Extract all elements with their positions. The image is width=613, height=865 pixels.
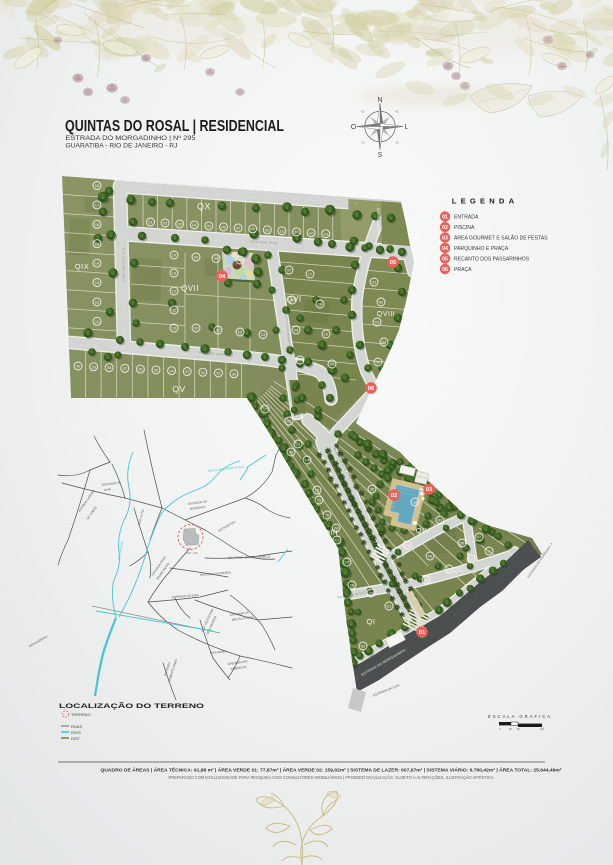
svg-text:04: 04 — [405, 543, 410, 548]
svg-text:19: 19 — [324, 332, 329, 337]
svg-text:05: 05 — [390, 260, 397, 266]
svg-text:26: 26 — [350, 583, 355, 588]
svg-text:23: 23 — [317, 498, 322, 503]
svg-text:06: 06 — [368, 386, 375, 392]
svg-text:10: 10 — [280, 228, 285, 233]
svg-text:17: 17 — [335, 538, 340, 543]
svg-text:12: 12 — [238, 330, 243, 335]
svg-text:ENTRADA: ENTRADA — [454, 214, 479, 220]
svg-text:01: 01 — [419, 630, 426, 636]
svg-text:32: 32 — [413, 500, 418, 505]
svg-text:34: 34 — [169, 368, 174, 373]
svg-text:12: 12 — [95, 300, 100, 305]
svg-text:13: 13 — [261, 332, 266, 337]
svg-text:17: 17 — [95, 203, 100, 208]
svg-text:05: 05 — [376, 360, 381, 365]
svg-text:12: 12 — [309, 230, 314, 235]
svg-text:33: 33 — [185, 369, 190, 374]
svg-text:04: 04 — [194, 255, 199, 260]
svg-text:40: 40 — [76, 364, 81, 369]
svg-text:04: 04 — [382, 340, 387, 345]
svg-text:QIV: QIV — [416, 526, 430, 535]
svg-text:07: 07 — [287, 268, 292, 273]
svg-text:ESCALA GRÁFICA: ESCALA GRÁFICA — [488, 714, 552, 719]
svg-text:06: 06 — [221, 225, 226, 230]
svg-text:31: 31 — [438, 518, 443, 523]
svg-text:05: 05 — [207, 224, 212, 229]
svg-text:10: 10 — [172, 326, 177, 331]
svg-text:18: 18 — [95, 183, 100, 188]
svg-text:09: 09 — [265, 227, 270, 232]
svg-text:TER. 245: TER. 245 — [185, 551, 198, 555]
svg-text:06: 06 — [238, 258, 243, 263]
svg-text:10: 10 — [298, 358, 303, 363]
svg-text:SE: SE — [395, 141, 399, 145]
svg-text:QIII: QIII — [324, 528, 338, 537]
svg-text:05: 05 — [442, 256, 448, 262]
svg-text:04: 04 — [192, 223, 197, 228]
svg-text:25: 25 — [345, 560, 350, 565]
svg-text:05: 05 — [214, 256, 219, 261]
svg-text:02: 02 — [391, 493, 397, 499]
svg-text:01: 01 — [372, 280, 377, 285]
svg-text:QVIII: QVIII — [377, 311, 395, 318]
svg-text:18: 18 — [318, 302, 323, 307]
svg-text:02: 02 — [163, 221, 168, 226]
svg-text:N: N — [377, 97, 382, 104]
svg-text:100: 100 — [540, 728, 545, 731]
svg-text:07: 07 — [236, 226, 241, 231]
svg-text:16: 16 — [95, 222, 100, 227]
svg-text:08: 08 — [250, 226, 255, 231]
svg-text:RECANTO DOS PASSARINHOS: RECANTO DOS PASSARINHOS — [454, 256, 530, 262]
svg-text:03: 03 — [375, 320, 380, 325]
svg-text:02: 02 — [361, 644, 366, 649]
svg-text:13: 13 — [296, 442, 301, 447]
svg-text:LEGENDA: LEGENDA — [452, 197, 519, 206]
svg-text:03: 03 — [442, 235, 448, 241]
svg-text:37: 37 — [123, 366, 128, 371]
svg-text:LOCALIZAÇÃO DO TERRENO: LOCALIZAÇÃO DO TERRENO — [59, 701, 204, 710]
svg-text:DIST.: DIST. — [71, 736, 81, 741]
svg-text:30: 30 — [232, 371, 237, 376]
svg-text:QV: QV — [172, 384, 185, 394]
svg-text:38: 38 — [107, 365, 112, 370]
svg-text:10: 10 — [194, 326, 199, 331]
svg-text:32: 32 — [201, 370, 206, 375]
svg-text:PARQUINHO E PRAÇA: PARQUINHO E PRAÇA — [454, 246, 509, 252]
svg-text:01: 01 — [148, 220, 153, 225]
svg-text:QVII: QVII — [181, 284, 199, 293]
svg-text:RUAS: RUAS — [71, 724, 82, 729]
svg-text:O: O — [351, 124, 357, 131]
svg-text:02: 02 — [442, 225, 448, 231]
svg-text:35: 35 — [154, 368, 159, 373]
svg-text:03: 03 — [177, 222, 182, 227]
svg-text:16: 16 — [325, 513, 330, 518]
svg-text:15: 15 — [315, 488, 320, 493]
svg-text:QVI: QVI — [286, 295, 301, 304]
svg-text:10: 10 — [469, 557, 474, 562]
svg-text:L: L — [405, 124, 409, 131]
svg-text:01: 01 — [442, 214, 448, 220]
svg-text:20: 20 — [330, 362, 335, 367]
svg-text:QII: QII — [452, 565, 464, 574]
svg-text:14: 14 — [95, 261, 100, 266]
svg-text:S: S — [378, 152, 383, 159]
svg-text:RUA DAS ANCORAS: RUA DAS ANCORAS — [122, 248, 126, 283]
svg-text:22: 22 — [289, 450, 294, 455]
svg-text:06: 06 — [442, 267, 448, 273]
svg-text:01: 01 — [387, 604, 392, 609]
svg-text:03: 03 — [426, 487, 433, 493]
svg-text:QUADRO DE ÁREAS | ÁREA TÉCNI: QUADRO DE ÁREAS | ÁREA TÉCNICA: 91,88 m²… — [101, 766, 562, 773]
svg-text:04: 04 — [219, 274, 226, 280]
svg-text:07: 07 — [477, 535, 482, 540]
svg-text:NE: NE — [395, 110, 399, 114]
svg-text:04: 04 — [442, 246, 448, 252]
svg-text:RIOS: RIOS — [71, 730, 81, 735]
svg-text:02: 02 — [379, 300, 384, 305]
svg-text:PRAÇA: PRAÇA — [454, 267, 472, 273]
svg-text:08: 08 — [424, 578, 429, 583]
svg-text:TERRENO: TERRENO — [71, 712, 91, 717]
svg-text:QI: QI — [367, 617, 376, 626]
svg-text:QUINTAS DO ROSAL | RESIDENCI: QUINTAS DO ROSAL | RESIDENCIAL — [65, 118, 284, 135]
svg-text:QX: QX — [197, 202, 211, 212]
svg-text:17: 17 — [308, 272, 313, 277]
svg-text:ÁREA COMUM: ÁREA COMUM — [376, 208, 380, 237]
svg-text:13: 13 — [95, 280, 100, 285]
svg-text:06: 06 — [460, 541, 465, 546]
svg-text:09: 09 — [294, 328, 299, 333]
svg-text:13: 13 — [323, 231, 328, 236]
svg-text:30: 30 — [370, 487, 375, 492]
svg-text:QIX: QIX — [75, 262, 89, 271]
svg-text:15: 15 — [95, 241, 100, 246]
svg-text:36: 36 — [138, 367, 143, 372]
svg-text:09: 09 — [447, 567, 452, 572]
svg-text:ÁREA GOURMET E SALÃO DE FESTAS: ÁREA GOURMET E SALÃO DE FESTAS — [454, 234, 548, 241]
svg-text:PISCINA: PISCINA — [454, 225, 475, 231]
svg-text:12: 12 — [172, 289, 177, 294]
svg-text:PREPARADO COM EXCLUSIVIDADE PA: PREPARADO COM EXCLUSIVIDADE PARA PESQUIS… — [169, 775, 494, 780]
svg-text:13: 13 — [172, 271, 177, 276]
svg-text:14: 14 — [305, 458, 310, 463]
svg-text:ESTRADA DO MORGADINHO | Nº 2: ESTRADA DO MORGADINHO | Nº 295 — [66, 135, 197, 142]
svg-text:31: 31 — [216, 371, 221, 376]
svg-text:39: 39 — [91, 364, 96, 369]
svg-text:14: 14 — [172, 253, 177, 258]
svg-text:12: 12 — [287, 419, 292, 424]
svg-text:05: 05 — [428, 554, 433, 559]
svg-text:GUARATIBA - RIO DE JANEIRO - R: GUARATIBA - RIO DE JANEIRO - RJ — [66, 142, 178, 149]
svg-text:03: 03 — [369, 591, 374, 596]
